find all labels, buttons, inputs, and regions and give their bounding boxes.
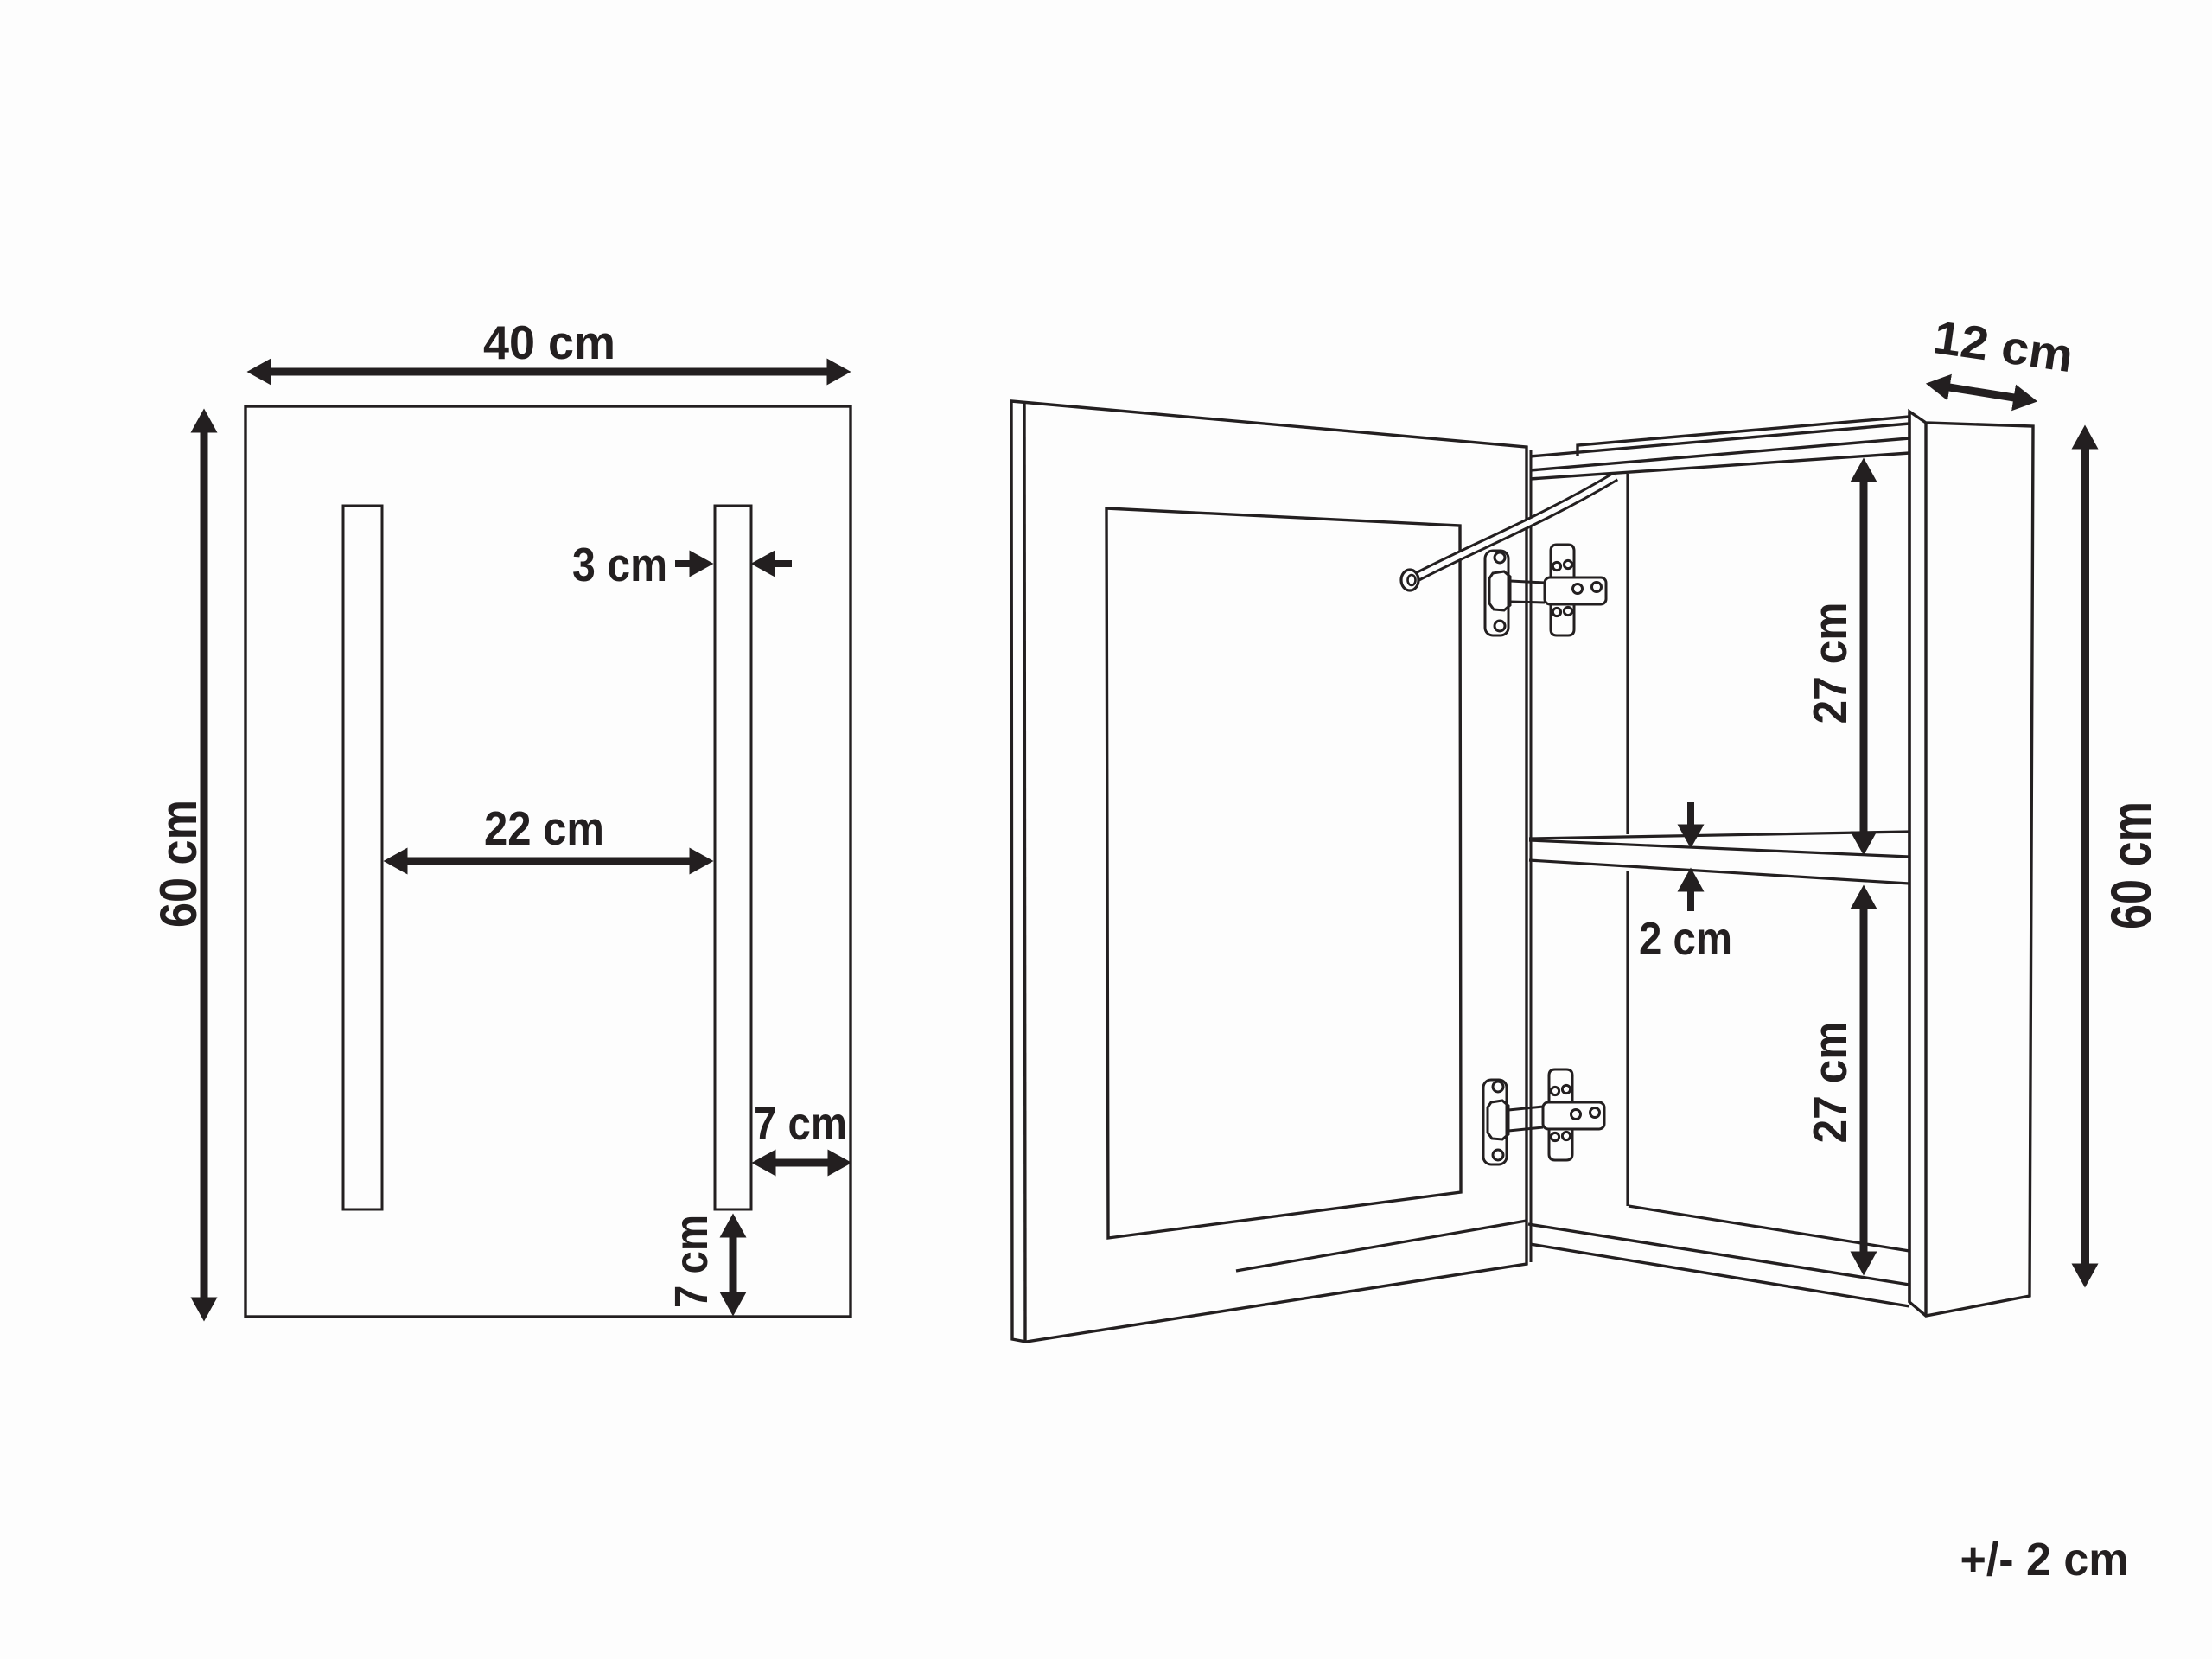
svg-text:+/- 2 cm: +/- 2 cm [1960,1534,2129,1586]
svg-text:22 cm: 22 cm [484,801,604,855]
svg-text:40 cm: 40 cm [483,316,615,369]
svg-text:3 cm: 3 cm [572,538,667,591]
svg-text:27 cm: 27 cm [1803,1022,1857,1144]
svg-text:60 cm: 60 cm [150,800,207,928]
svg-text:27 cm: 27 cm [1803,603,1857,724]
svg-text:7 cm: 7 cm [666,1215,717,1308]
svg-text:2 cm: 2 cm [1639,913,1732,965]
svg-text:7 cm: 7 cm [754,1098,847,1150]
svg-text:60 cm: 60 cm [2099,801,2163,929]
